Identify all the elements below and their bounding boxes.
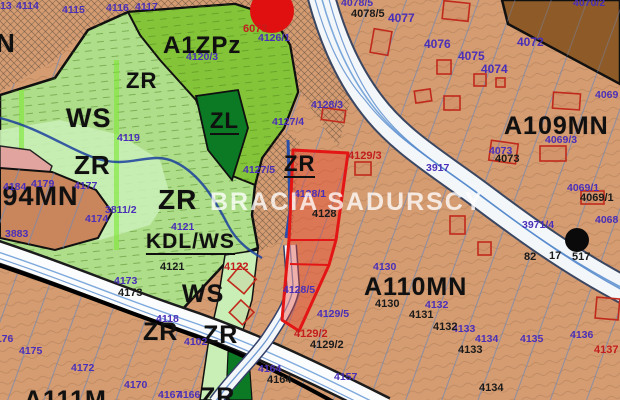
watermark: BRACIA SADURSCY (210, 188, 484, 217)
zoning-map[interactable]: NA1ZPzZRWSZLZRZRA94MNKDL/WSZRA109MNA110M… (0, 0, 620, 400)
survey-point (565, 228, 589, 252)
